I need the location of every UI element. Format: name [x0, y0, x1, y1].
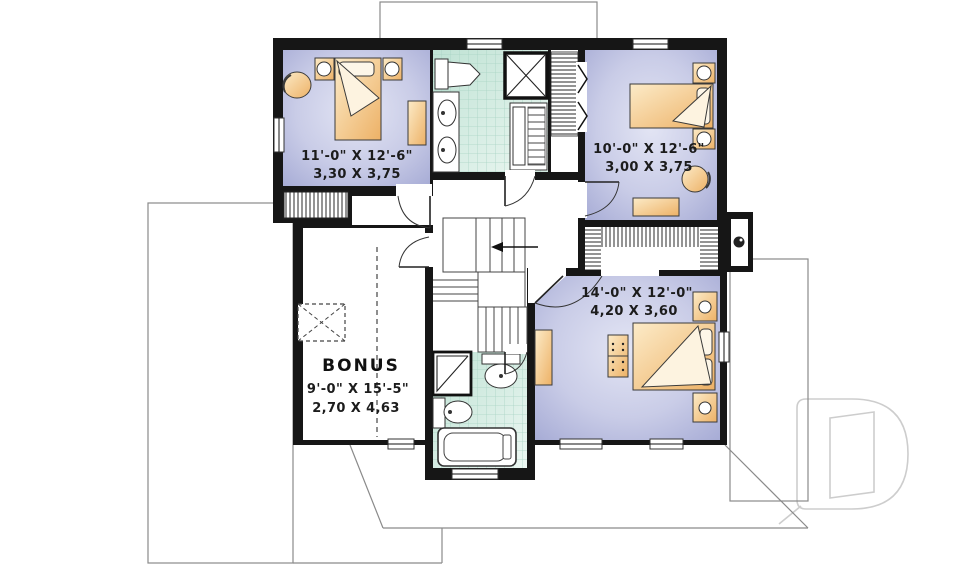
double-vanity-icon: [433, 92, 459, 172]
chair-icon: [283, 72, 311, 98]
window: [274, 118, 284, 152]
window: [388, 439, 414, 449]
dresser-icon: [608, 335, 628, 377]
window: [719, 332, 729, 362]
window: [633, 39, 668, 49]
window: [452, 469, 498, 479]
walkin-rack-top: [601, 227, 700, 247]
bedroom-2-dimensions-imperial: 10'-0" X 12'-6": [593, 142, 705, 157]
floor-plan-svg: 11'-0" X 12'-6" 3,30 X 3,75 10'-0" X 12'…: [0, 0, 960, 569]
window: [467, 39, 502, 49]
linen-closet-icon: [510, 103, 547, 170]
brand-watermark-d-icon: [779, 399, 908, 524]
rug: [535, 330, 552, 385]
bed-icon: [335, 58, 381, 140]
bed-icon: [630, 84, 713, 128]
bedroom-1-dimensions-imperial: 11'-0" X 12'-6": [301, 149, 413, 164]
bathtub-icon: [438, 428, 516, 466]
bed-icon: [633, 323, 715, 390]
walkin-rack-left: [585, 227, 601, 270]
walkin-rack-right: [700, 227, 718, 270]
bonus-room-dimensions-imperial: 9'-0" X 15'-5": [307, 382, 409, 397]
bonus-room-dimensions-metric: 2,70 X 4,63: [312, 401, 400, 416]
floor-plan-canvas: 11'-0" X 12'-6" 3,30 X 3,75 10'-0" X 12'…: [0, 0, 960, 569]
corner-shower-icon: [433, 352, 471, 395]
window: [560, 439, 602, 449]
bumpout-fixture-icon: [734, 237, 745, 248]
bedroom-2-closet-rack: [551, 52, 578, 136]
bedroom-2-dimensions-metric: 3,00 X 3,75: [605, 160, 693, 175]
bumpout-fixture-dot: [740, 239, 743, 242]
window: [650, 439, 683, 449]
rug: [633, 198, 679, 216]
bedroom-3-dimensions-metric: 4,20 X 3,60: [590, 304, 678, 319]
rug: [408, 101, 426, 145]
bedroom-3-dimensions-imperial: 14'-0" X 12'-0": [581, 286, 693, 301]
walkin-opening: [601, 268, 659, 276]
shower-icon: [505, 53, 547, 98]
bedroom-1-closet-rack: [284, 192, 348, 218]
bedroom-1-dimensions-metric: 3,30 X 3,75: [313, 167, 401, 182]
bonus-room-name: BONUS: [322, 356, 400, 376]
